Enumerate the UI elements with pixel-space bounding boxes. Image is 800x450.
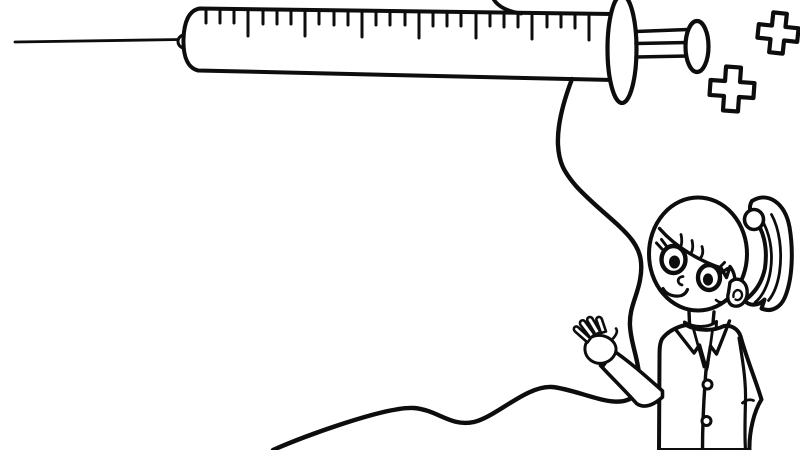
line-art-canvas: Black and white coloring-page style line… (0, 0, 800, 450)
coat-button (703, 380, 712, 389)
syringe-needle-icon (15, 40, 181, 43)
left-pupil (670, 256, 680, 268)
ear (728, 279, 747, 306)
coloring-illustration: Black and white coloring-page style line… (0, 0, 800, 450)
coat-button (702, 417, 711, 426)
girl (574, 197, 792, 450)
plunger-handle (686, 21, 709, 72)
hair-tie (745, 210, 764, 230)
right-pupil (703, 274, 712, 285)
medical-cross-icon (709, 66, 756, 113)
medical-crosses (709, 11, 800, 112)
medical-cross-icon (756, 11, 800, 55)
plunger-rod (636, 30, 688, 58)
neck (689, 311, 714, 323)
waving-hand (574, 317, 617, 363)
thumb-line (613, 329, 617, 340)
iv-tube (273, 79, 641, 450)
syringe (15, 0, 709, 103)
syringe-flange (608, 0, 637, 103)
